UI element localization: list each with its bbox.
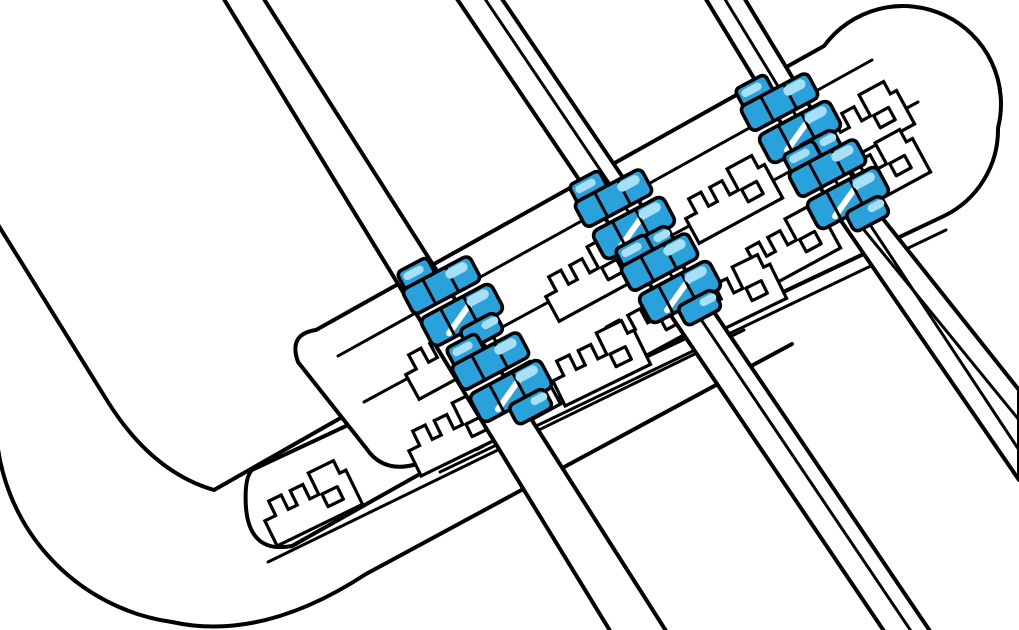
bundle-wire-line-2 [853,199,1019,450]
technical-illustration [0,0,1019,630]
bundle-body [824,196,1019,480]
cable-bundle [824,196,1019,480]
bundle-wire-line-1 [838,198,1019,420]
illustration-canvas [0,0,1019,630]
